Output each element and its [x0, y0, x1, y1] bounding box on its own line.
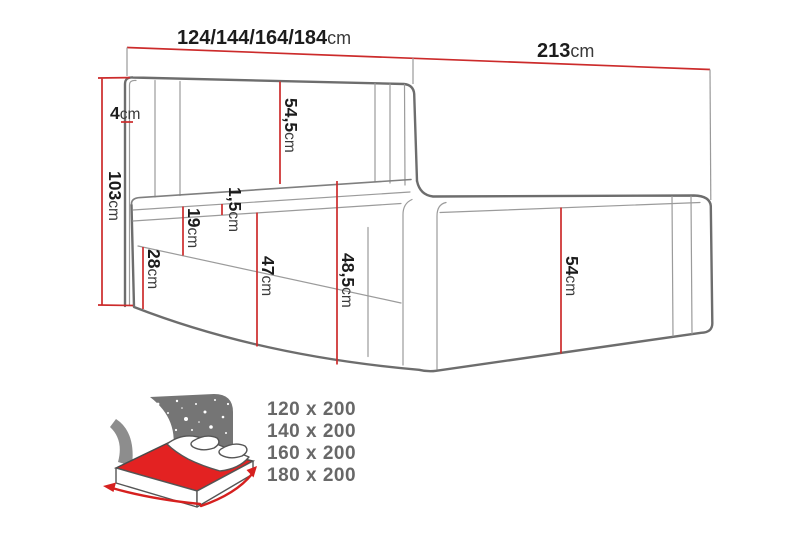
bed-drawing: 124/144/164/184cm 213cm 103cm 4cm 54,5cm…	[98, 27, 712, 507]
mattress-top-edge	[132, 180, 412, 205]
side-rail-seam	[440, 203, 700, 213]
label-total-length: 213cm	[537, 40, 594, 62]
label-mattress-height: 19cm	[184, 208, 204, 248]
size-option-2: 140 x 200	[267, 421, 356, 442]
size-option-3: 160 x 200	[267, 443, 356, 464]
label-headboard-edge: 4cm	[110, 103, 140, 123]
label-side-height: 54cm	[562, 256, 582, 296]
size-option-4: 180 x 200	[267, 465, 356, 486]
dimension-line-top	[127, 48, 710, 70]
bed-body	[132, 180, 713, 372]
dimension-labels: 124/144/164/184cm 213cm 103cm 4cm 54,5cm…	[105, 27, 594, 308]
label-headboard-panel: 54,5cm	[281, 98, 301, 153]
size-list: 120 x 200 140 x 200 160 x 200 180 x 200	[267, 399, 356, 486]
moon-swoosh-shadow	[110, 419, 133, 466]
bed-body-outline	[132, 181, 713, 371]
diagram-canvas: 124/144/164/184cm 213cm 103cm 4cm 54,5cm…	[0, 0, 800, 533]
mattress-welt-lower	[133, 204, 401, 222]
bed-dimension-diagram: 124/144/164/184cm 213cm 103cm 4cm 54,5cm…	[0, 0, 800, 533]
label-corner-height: 48,5cm	[338, 253, 358, 308]
label-front-height: 47cm	[258, 256, 278, 296]
label-width-variants: 124/144/164/184cm	[177, 27, 351, 49]
foot-seam-2	[691, 196, 692, 334]
headboard-seam-right-3	[405, 85, 406, 186]
tick-foot-end	[710, 70, 711, 201]
size-option-1: 120 x 200	[267, 399, 356, 420]
storage-bed-icon	[103, 394, 257, 507]
foot-seam-1	[672, 197, 673, 337]
corner-seam-2	[403, 200, 412, 366]
label-mattress-lip: 1,5cm	[225, 187, 245, 232]
width-arrowhead	[103, 483, 116, 493]
corner-seam-3	[437, 203, 446, 370]
label-drawer-height: 28cm	[144, 249, 164, 289]
label-total-height: 103cm	[105, 171, 125, 221]
